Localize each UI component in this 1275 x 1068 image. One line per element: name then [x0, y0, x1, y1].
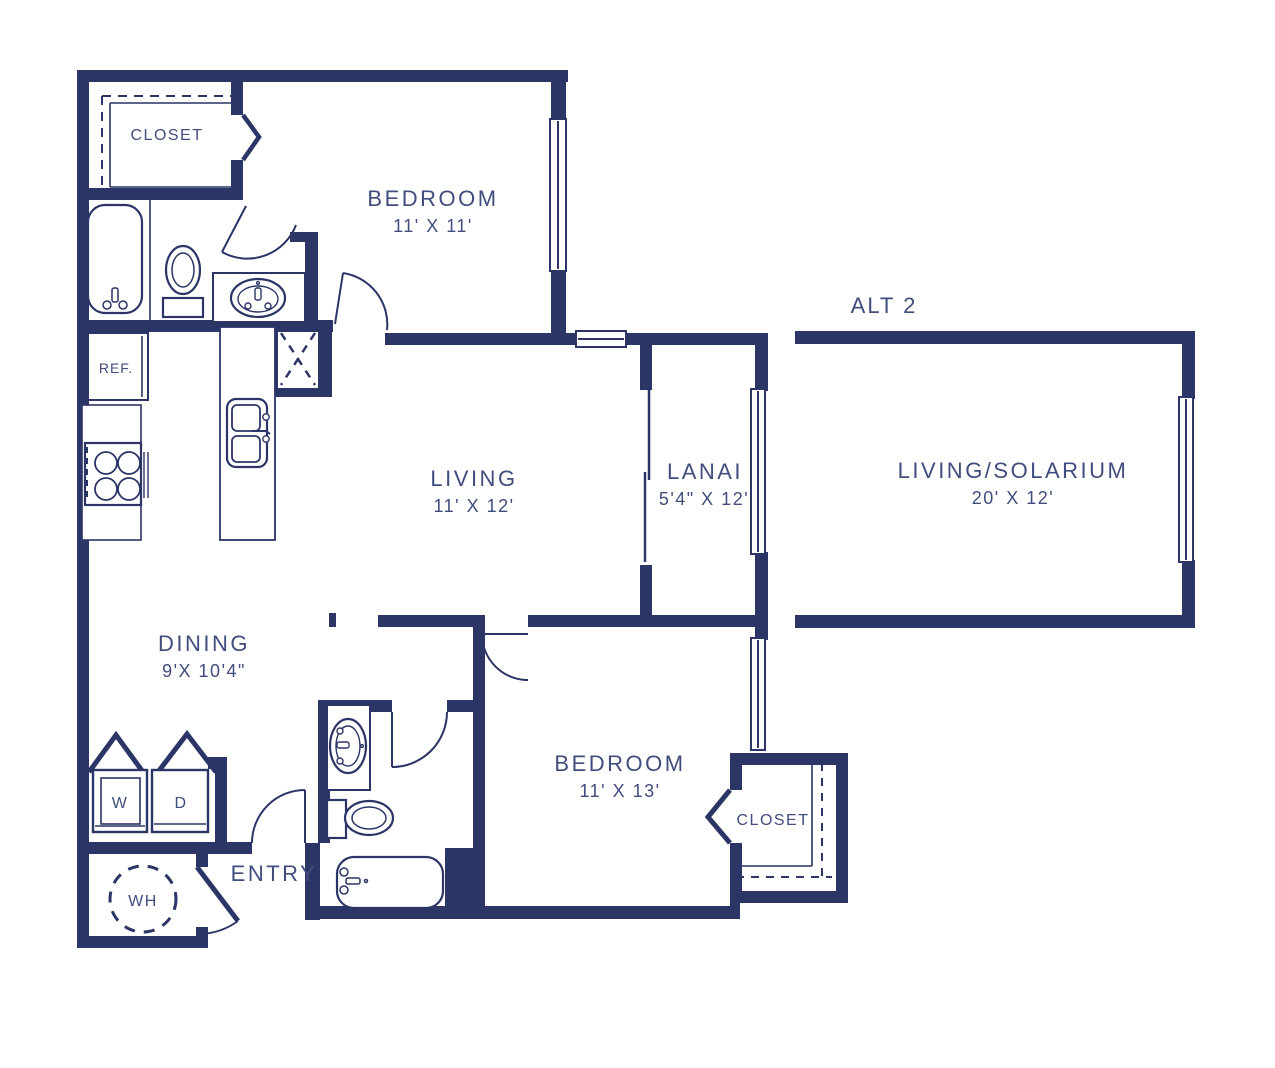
door-laundry-bifold-left: [89, 735, 143, 772]
living-dims: 11' X 12': [433, 496, 514, 516]
wall: [77, 70, 568, 82]
wall: [77, 936, 208, 948]
wall: [196, 850, 208, 867]
wall: [528, 615, 647, 627]
windows: [550, 119, 1193, 750]
alt2-label: ALT 2: [851, 293, 918, 318]
living-label: LIVING: [430, 466, 517, 491]
wall: [77, 842, 252, 854]
floor-plan-canvas: CLOSET BEDROOM 11' X 11' ALT 2 LIVING 11…: [0, 0, 1275, 1068]
wall: [1182, 331, 1195, 399]
toilet-2: [327, 800, 393, 838]
bedroom1-label: BEDROOM: [367, 186, 498, 211]
pantry-x: [281, 333, 315, 385]
wall: [378, 615, 482, 627]
wall: [77, 188, 243, 200]
bedroom2-label: BEDROOM: [554, 751, 685, 776]
solarium-dims: 20' X 12': [972, 488, 1054, 508]
dining-label: DINING: [158, 631, 250, 656]
solarium-label: LIVING/SOLARIUM: [898, 458, 1129, 483]
floor-plan: CLOSET BEDROOM 11' X 11' ALT 2 LIVING 11…: [0, 0, 1275, 1068]
door-entry: [252, 790, 305, 843]
wall: [329, 613, 336, 627]
closet1-label: CLOSET: [130, 127, 203, 144]
wall: [231, 82, 243, 115]
wall: [730, 843, 742, 891]
window-lanai: [751, 389, 765, 554]
door-bedroom1: [335, 273, 387, 330]
wall: [385, 333, 577, 345]
wall: [447, 700, 485, 712]
wall: [640, 345, 652, 390]
wall: [645, 615, 768, 627]
window-solarium: [1179, 397, 1193, 562]
wall: [795, 331, 1195, 344]
door-closet1-bifold: [243, 115, 259, 160]
washer-label: W: [112, 795, 129, 812]
water-heater-label: WH: [128, 893, 158, 910]
stove: [85, 443, 148, 505]
sliding-door-lanai: [645, 388, 649, 562]
wall: [551, 70, 566, 120]
door-laundry-bifold-right: [158, 734, 216, 772]
wall: [836, 765, 848, 891]
vanity-sink-2: [327, 705, 370, 790]
fixtures: [82, 200, 443, 932]
window-living-top: [576, 331, 626, 347]
wall: [730, 765, 742, 790]
bathtub-2: [337, 857, 443, 908]
wall: [730, 891, 848, 903]
wall: [445, 848, 475, 908]
vanity-sink-1: [213, 273, 305, 322]
wall: [318, 322, 332, 397]
wall: [231, 160, 243, 190]
entry-label: ENTRY: [231, 861, 318, 886]
kitchen-island: [220, 327, 275, 540]
wall: [755, 333, 768, 391]
window-bedroom2: [751, 638, 765, 750]
wall: [795, 615, 1195, 628]
refrigerator-label: REF.: [99, 360, 133, 376]
lanai-label: LANAI: [667, 459, 743, 484]
wall: [730, 903, 740, 915]
lanai-dims: 5'4" X 12': [659, 489, 749, 509]
bedroom1-dims: 11' X 11': [393, 216, 473, 236]
window-bedroom1: [550, 119, 566, 271]
dining-dims: 9'X 10'4": [162, 661, 246, 681]
door-bathroom2: [392, 712, 447, 767]
door-bedroom2: [482, 634, 528, 680]
door-closet2-bifold: [708, 790, 730, 843]
island-double-sink: [227, 399, 270, 467]
closet2-label: CLOSET: [736, 812, 809, 829]
wall: [626, 333, 768, 345]
bedroom2-dims: 11' X 13': [579, 781, 660, 801]
bathtub-1: [88, 200, 150, 320]
toilet-1: [163, 246, 203, 317]
dryer-label: D: [174, 795, 187, 812]
door-bathroom1: [222, 206, 296, 259]
wall: [305, 232, 318, 322]
